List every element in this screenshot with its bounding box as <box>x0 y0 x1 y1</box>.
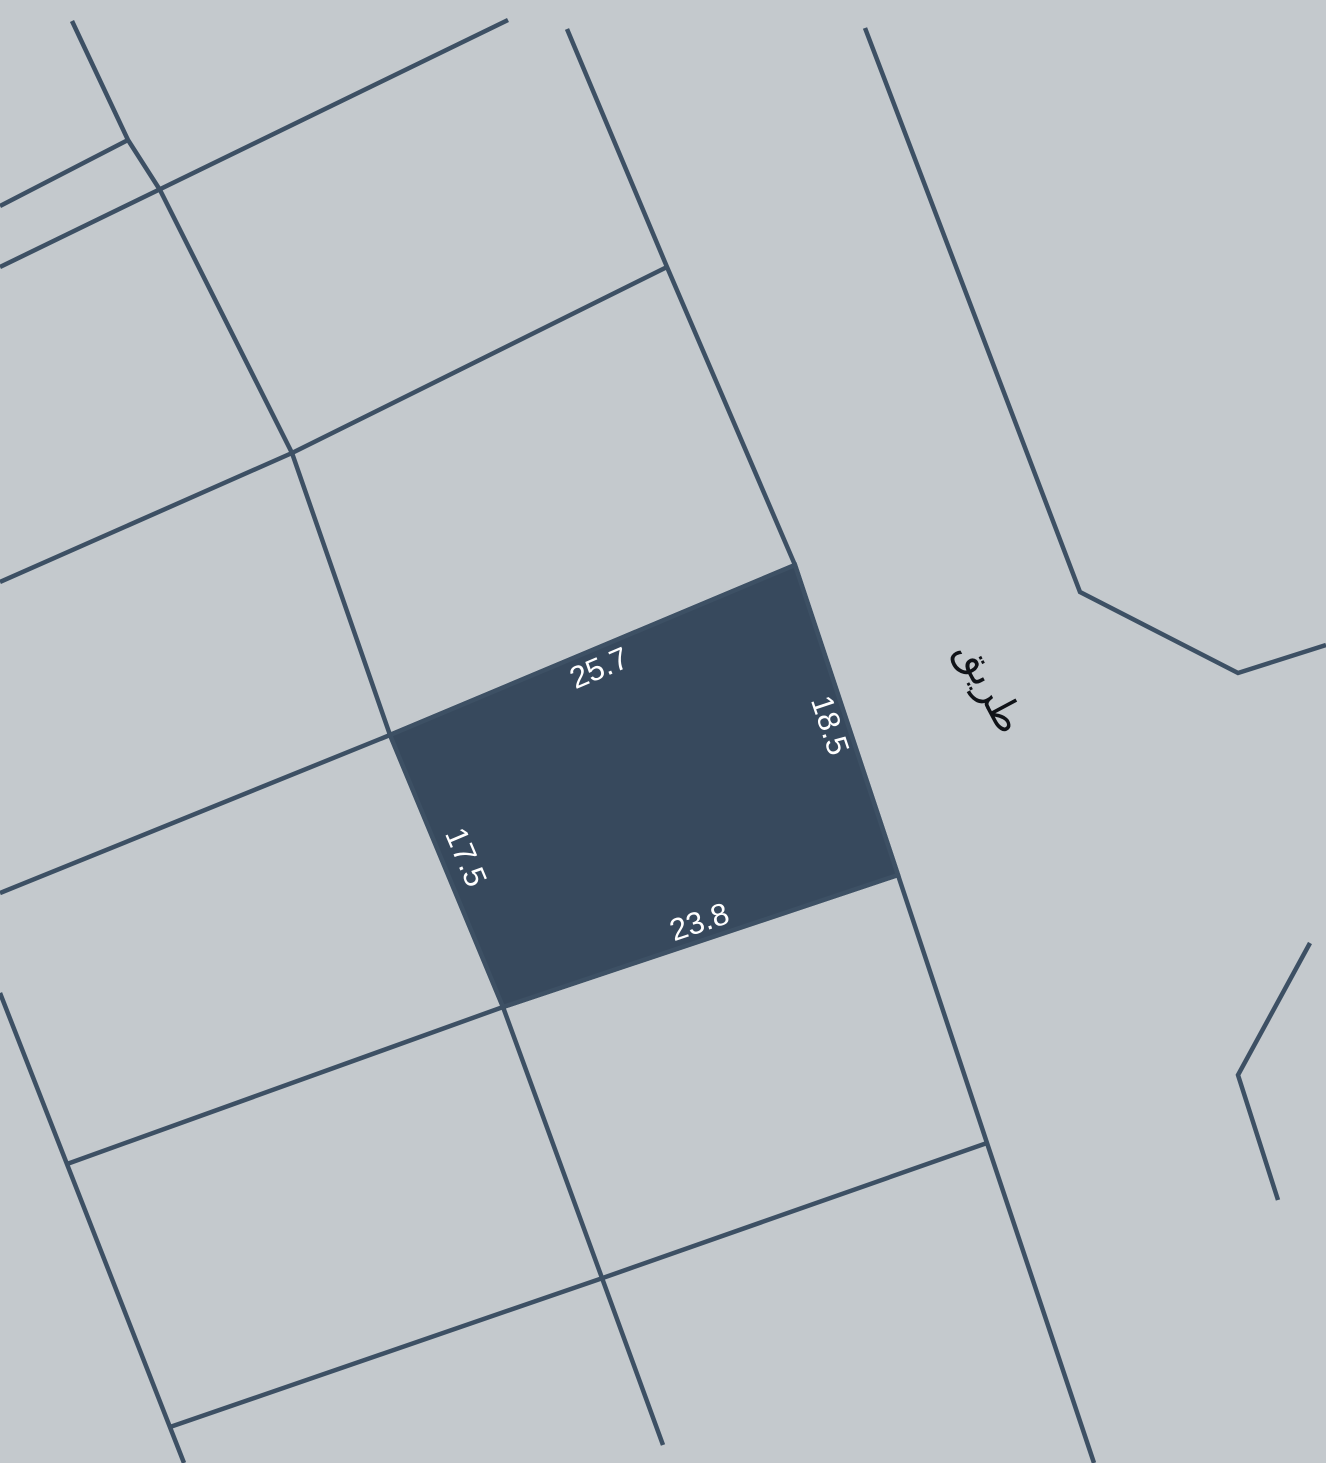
cadastral-map: 25.718.517.523.8طريق <box>0 0 1326 1463</box>
map-canvas: 25.718.517.523.8طريق <box>0 0 1326 1463</box>
